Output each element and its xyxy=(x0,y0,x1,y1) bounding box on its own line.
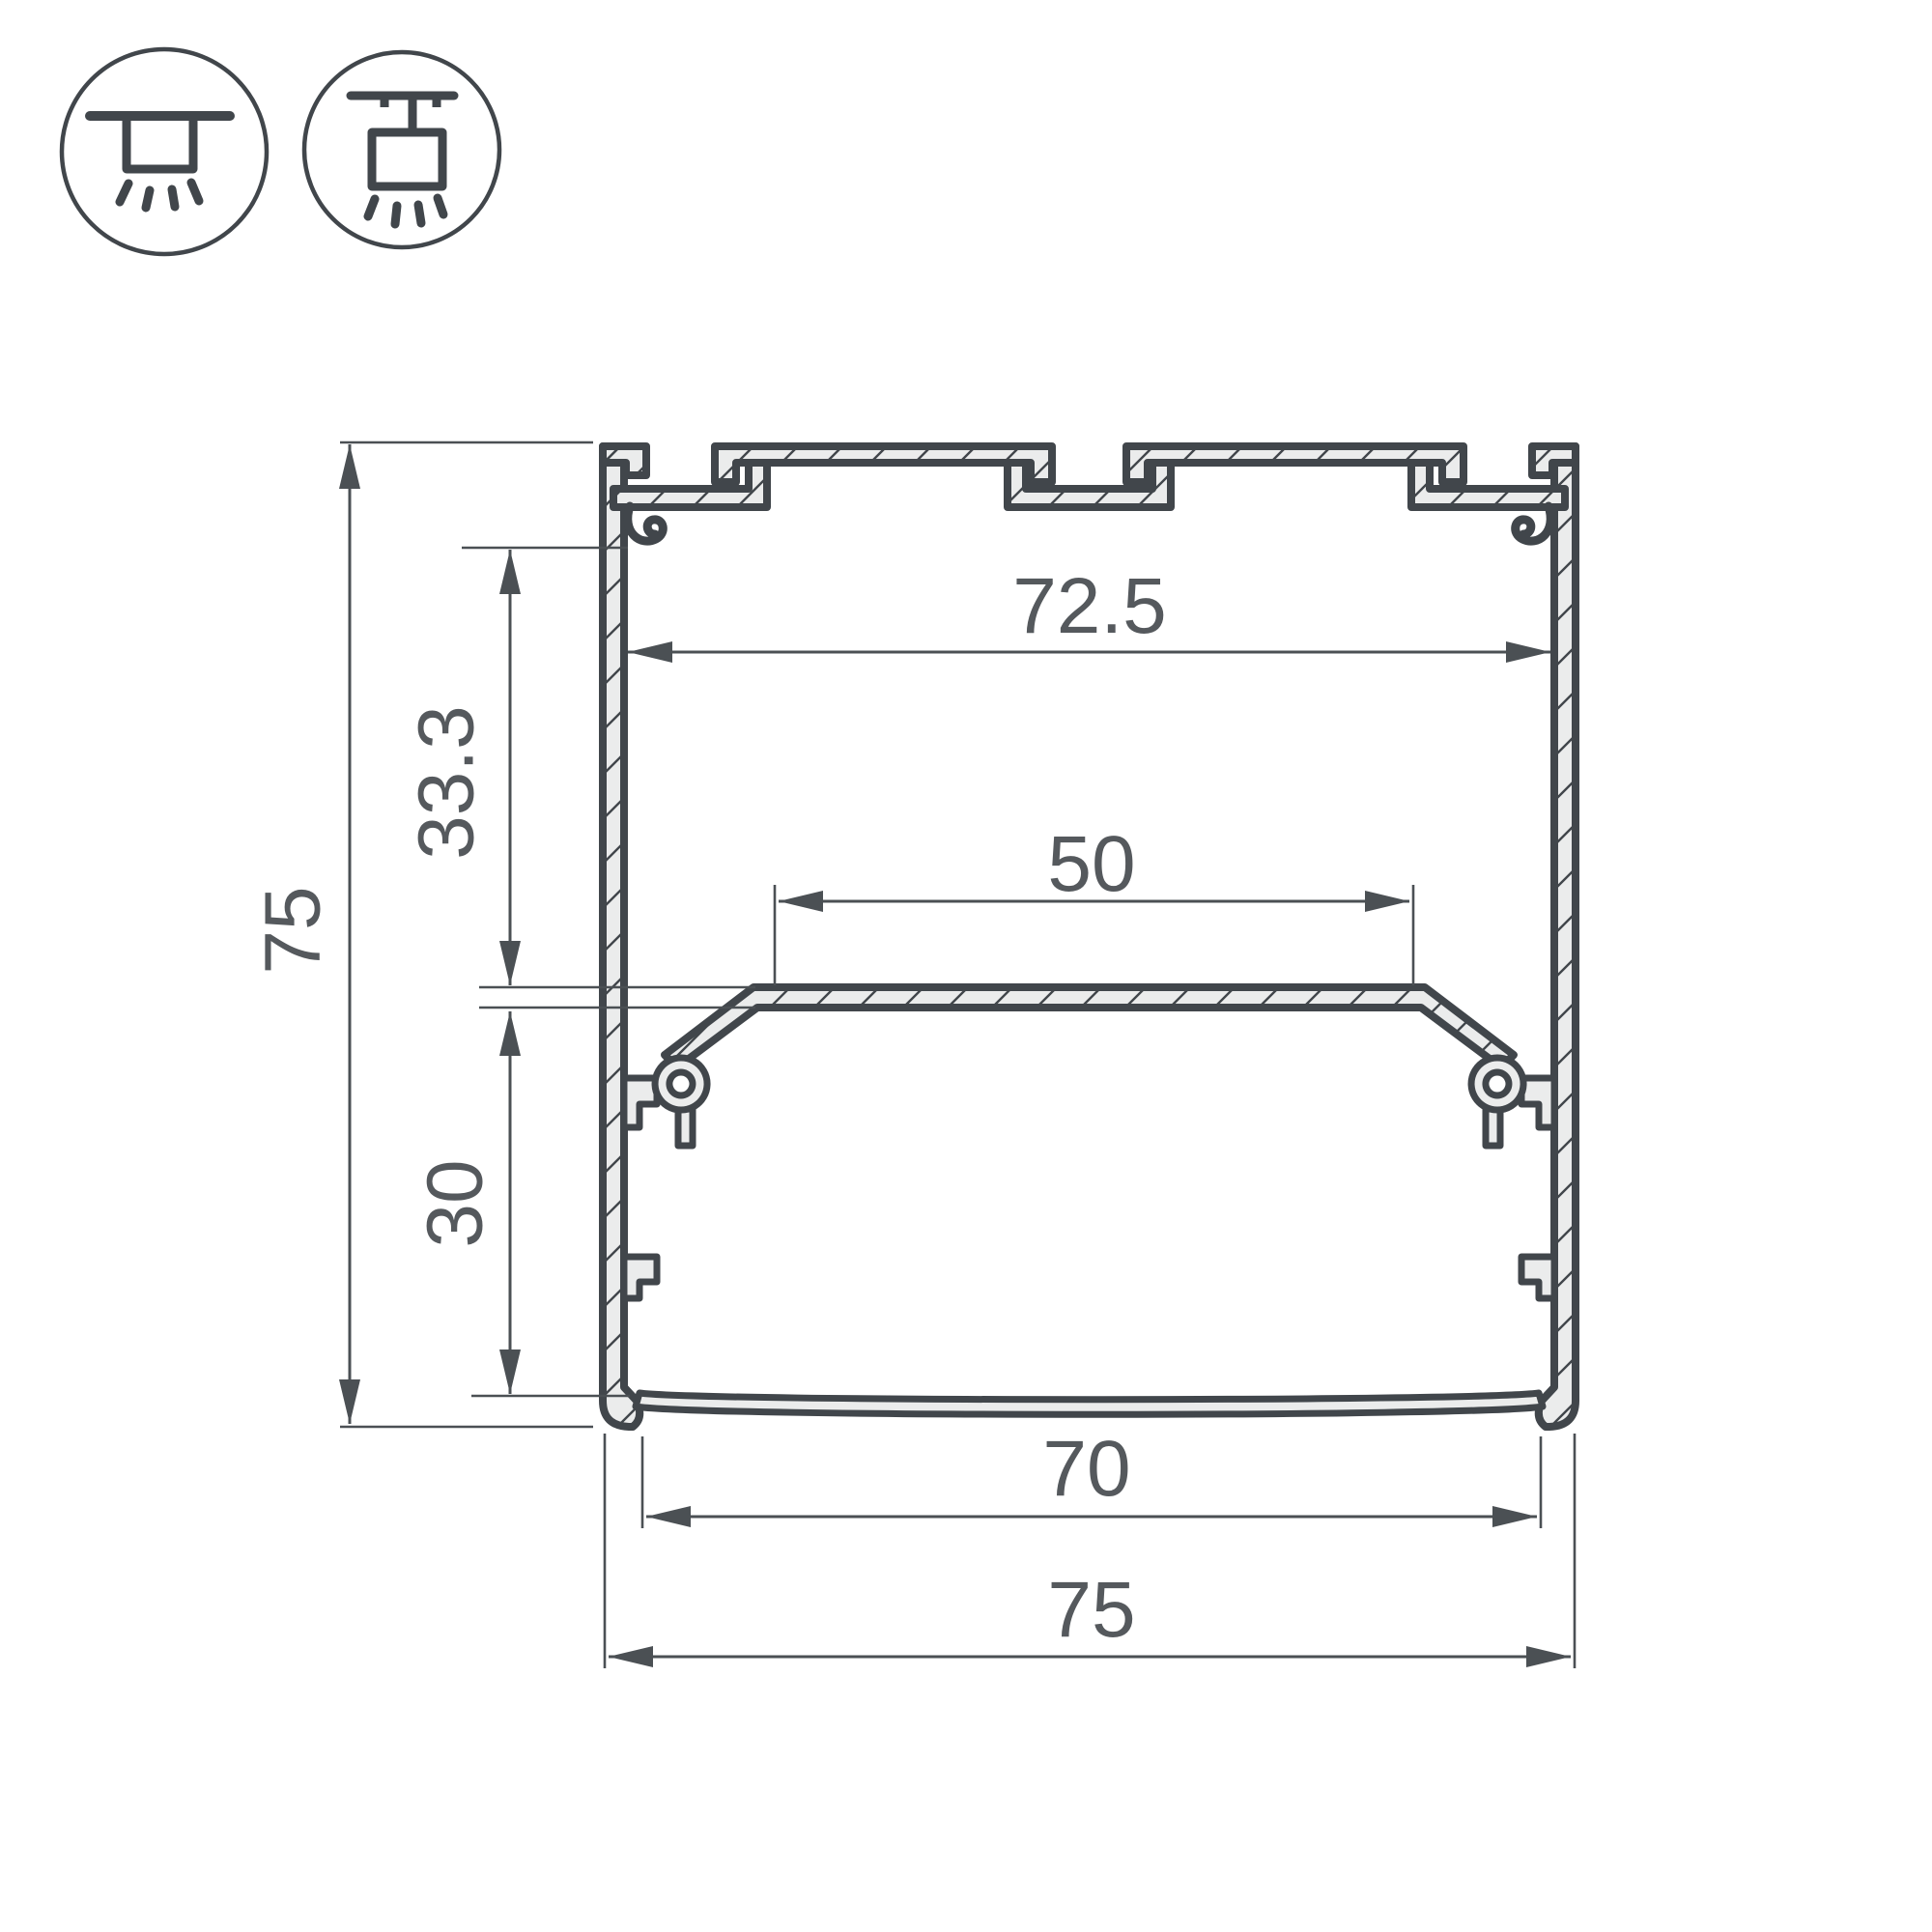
arrowhead xyxy=(1365,891,1409,912)
arrowhead xyxy=(499,1011,521,1056)
diffuser xyxy=(636,1393,1543,1414)
arrowhead xyxy=(339,444,360,489)
spring-hook-left xyxy=(628,506,664,541)
pendant-mount-icon xyxy=(304,52,499,247)
boss-tab-right xyxy=(1486,1109,1500,1146)
lower-inner-height-label: 30 xyxy=(412,1159,499,1247)
recessed-box xyxy=(127,116,193,169)
dimension-labels: 75 33.3 30 72.5 50 70 75 xyxy=(249,562,1167,1654)
bottom-opening-width-label: 70 xyxy=(1042,1425,1130,1513)
drawing-page: 75 33.3 30 72.5 50 70 75 xyxy=(0,0,1932,1932)
overall-width-label: 75 xyxy=(1047,1566,1135,1654)
profile-drawing: 75 33.3 30 72.5 50 70 75 xyxy=(0,0,1932,1932)
wall-clip-lower-right xyxy=(1521,1257,1554,1298)
screw-boss-left xyxy=(655,1058,707,1110)
arrowhead xyxy=(1506,641,1550,663)
arrowhead xyxy=(779,891,823,912)
icon-circle xyxy=(62,49,267,254)
arrowhead xyxy=(609,1646,653,1667)
dimension-overall-height xyxy=(339,442,593,1427)
arrowhead xyxy=(646,1506,691,1527)
overall-height-label: 75 xyxy=(249,886,337,974)
arrowhead xyxy=(499,1350,521,1394)
inner-width-label: 72.5 xyxy=(1012,562,1167,650)
screw-boss-right xyxy=(1471,1058,1523,1110)
dimension-graphics xyxy=(339,442,1575,1668)
arrowhead xyxy=(339,1379,360,1424)
arrowhead xyxy=(628,641,672,663)
pendant-box xyxy=(372,132,442,186)
icon-circle xyxy=(304,52,499,247)
light-rays xyxy=(368,198,443,224)
arrowhead xyxy=(499,550,521,594)
boss-tab-left xyxy=(678,1109,693,1146)
arrowhead xyxy=(1526,1646,1571,1667)
wall-clip-lower-left xyxy=(624,1257,657,1298)
spring-hook-right xyxy=(1516,506,1551,541)
light-rays xyxy=(120,183,199,208)
arrowhead xyxy=(499,941,521,985)
upper-inner-height-label: 33.3 xyxy=(403,705,491,860)
surface-mount-icon xyxy=(62,49,267,254)
arrowhead xyxy=(1492,1506,1537,1527)
led-plate-width-label: 50 xyxy=(1047,820,1135,908)
